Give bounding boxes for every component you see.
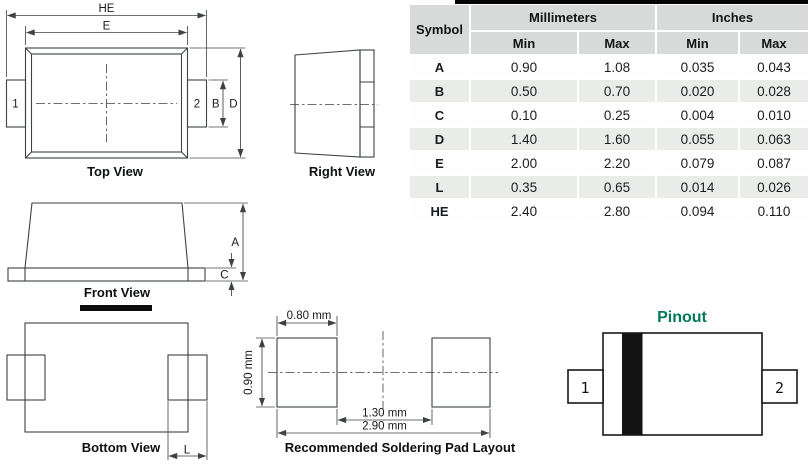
package-dimensions-page: HE E 1 2 B D Top View Right View A C Fro… <box>0 0 811 466</box>
table-cell: 2.00 <box>471 152 577 174</box>
dim-label-a: A <box>231 237 239 249</box>
table-cell: 0.079 <box>657 152 738 174</box>
dim-label-d: D <box>229 99 237 111</box>
top-view-pin2-label: 2 <box>194 99 200 111</box>
table-cell: 2.40 <box>471 200 577 222</box>
dim-label-overall: 2.90 mm <box>362 421 407 433</box>
table-cell: 2.80 <box>579 200 655 222</box>
dim-label-e: E <box>103 21 111 33</box>
top-view-drawing: HE E 1 2 B D Top View <box>0 0 250 182</box>
table-row-symbol: HE <box>410 200 469 222</box>
table-cell: 0.50 <box>471 80 577 102</box>
table-top-rule <box>455 0 808 4</box>
col-group-millimeters: Millimeters <box>471 5 655 30</box>
dim-label-c: C <box>220 270 228 282</box>
table-row-symbol: E <box>410 152 469 174</box>
table-cell: 0.10 <box>471 104 577 126</box>
right-view-drawing: Right View <box>265 30 400 182</box>
table-cell: 0.028 <box>740 80 808 102</box>
right-view-geometry <box>290 50 378 157</box>
table-cell: 0.063 <box>740 128 808 150</box>
table-cell: 0.35 <box>471 176 577 198</box>
table-row-symbol: A <box>410 56 469 78</box>
table-cell: 0.010 <box>740 104 808 126</box>
front-view-geometry <box>8 203 248 296</box>
table-cell: 0.087 <box>740 152 808 174</box>
pinout-pin1-label: 1 <box>580 379 589 397</box>
table-cell: 0.70 <box>579 80 655 102</box>
col-header-mm-min: Min <box>471 32 577 54</box>
dim-label-he: HE <box>99 3 115 15</box>
table-cell: 0.014 <box>657 176 738 198</box>
pinout-drawing: Pinout 1 2 <box>540 302 811 442</box>
table-cell: 0.020 <box>657 80 738 102</box>
pinout-pin2-label: 2 <box>775 379 784 397</box>
table-cell: 1.08 <box>579 56 655 78</box>
top-view-label: Top View <box>87 164 144 179</box>
table-cell: 0.026 <box>740 176 808 198</box>
table-row-symbol: B <box>410 80 469 102</box>
pad-layout-label: Recommended Soldering Pad Layout <box>285 440 516 455</box>
col-header-symbol: Symbol <box>410 5 469 54</box>
table-cell: 0.65 <box>579 176 655 198</box>
cathode-band <box>622 333 643 435</box>
table-row-symbol: D <box>410 128 469 150</box>
right-view-label: Right View <box>309 164 376 179</box>
table-row-symbol: C <box>410 104 469 126</box>
table-cell: 0.90 <box>471 56 577 78</box>
dim-label-pad-height: 0.90 mm <box>243 350 255 395</box>
top-view-pin1-label: 1 <box>12 99 18 111</box>
front-view-drawing: A C Front View <box>0 190 255 308</box>
table-cell: 0.035 <box>657 56 738 78</box>
bottom-view-label: Bottom View <box>82 440 161 455</box>
table-cell: 1.60 <box>579 128 655 150</box>
pinout-geometry <box>568 333 797 435</box>
col-header-in-max: Max <box>740 32 808 54</box>
dim-label-b: B <box>212 99 220 111</box>
dim-label-l: L <box>184 445 191 457</box>
table-cell: 0.043 <box>740 56 808 78</box>
front-view-label: Front View <box>84 285 151 300</box>
dim-label-inner-gap: 1.30 mm <box>362 408 407 420</box>
bottom-view-drawing: L Bottom View <box>0 316 235 466</box>
table-cell: 0.004 <box>657 104 738 126</box>
pinout-title: Pinout <box>657 309 707 326</box>
table-cell: 0.25 <box>579 104 655 126</box>
table-row-symbol: L <box>410 176 469 198</box>
table-cell: 2.20 <box>579 152 655 174</box>
table-cell: 0.110 <box>740 200 808 222</box>
col-group-inches: Inches <box>657 5 808 30</box>
col-header-mm-max: Max <box>579 32 655 54</box>
table-cell: 1.40 <box>471 128 577 150</box>
pad-layout-drawing: 0.80 mm 0.90 mm 1.30 mm 2.90 mm Recommen… <box>240 300 525 460</box>
col-header-in-min: Min <box>657 32 738 54</box>
table-cell: 0.094 <box>657 200 738 222</box>
front-view-divider-bar <box>80 305 152 311</box>
top-view-geometry <box>7 10 246 158</box>
table-cell: 0.055 <box>657 128 738 150</box>
dim-label-pad-width: 0.80 mm <box>287 310 332 322</box>
dimensions-table: Symbol Millimeters Inches Min Max Min Ma… <box>410 5 808 222</box>
